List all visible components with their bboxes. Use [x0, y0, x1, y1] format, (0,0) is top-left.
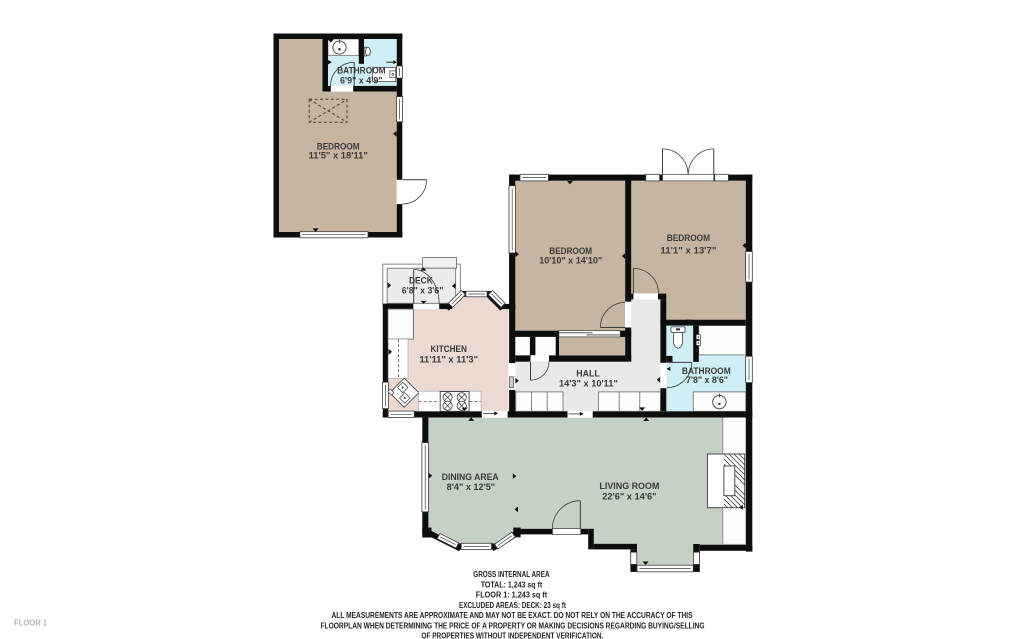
svg-text:11'5" x 18'11": 11'5" x 18'11" — [309, 151, 368, 161]
svg-text:EXCLUDED AREAS: DECK: 23 sq ft: EXCLUDED AREAS: DECK: 23 sq ft — [459, 600, 566, 610]
svg-text:BEDROOM: BEDROOM — [549, 246, 592, 256]
svg-text:TOTAL: 1,243 sq ft: TOTAL: 1,243 sq ft — [481, 579, 543, 589]
svg-text:6'8" x 3'6": 6'8" x 3'6" — [402, 286, 444, 296]
svg-text:8'4" x 12'5": 8'4" x 12'5" — [447, 482, 496, 492]
svg-text:FLOORPLAN WHEN DETERMINING THE: FLOORPLAN WHEN DETERMINING THE PRICE OF … — [321, 621, 705, 631]
svg-text:OF PROPERTIES WITHOUT INDEPEND: OF PROPERTIES WITHOUT INDEPENDENT VERIFI… — [421, 631, 603, 639]
svg-text:DINING AREA: DINING AREA — [442, 472, 500, 482]
svg-text:6'9" x 4'9": 6'9" x 4'9" — [340, 76, 383, 86]
svg-text:10'10" x 14'10": 10'10" x 14'10" — [539, 255, 602, 265]
svg-text:BATHROOM: BATHROOM — [337, 65, 386, 75]
svg-text:FLOOR 1: FLOOR 1 — [14, 618, 47, 628]
svg-text:GROSS INTERNAL AREA: GROSS INTERNAL AREA — [473, 569, 549, 579]
svg-text:11'11" x 11'3": 11'11" x 11'3" — [419, 355, 478, 365]
svg-text:FLOOR 1: 1,243 sq ft: FLOOR 1: 1,243 sq ft — [476, 590, 548, 600]
svg-text:22'6" x 14'6": 22'6" x 14'6" — [602, 492, 656, 502]
svg-text:14'3" x 10'11": 14'3" x 10'11" — [559, 379, 618, 389]
svg-text:KITCHEN: KITCHEN — [431, 344, 467, 354]
svg-text:11'1" x 13'7": 11'1" x 13'7" — [660, 246, 716, 256]
svg-text:7'8" x 8'6": 7'8" x 8'6" — [686, 375, 728, 385]
svg-text:LIVING ROOM: LIVING ROOM — [599, 481, 659, 491]
svg-text:HALL: HALL — [576, 368, 600, 378]
svg-text:DECK: DECK — [409, 276, 433, 286]
svg-text:BEDROOM: BEDROOM — [667, 233, 710, 243]
svg-text:ALL MEASUREMENTS ARE APPROXIMA: ALL MEASUREMENTS ARE APPROXIMATE AND MAY… — [332, 610, 693, 620]
